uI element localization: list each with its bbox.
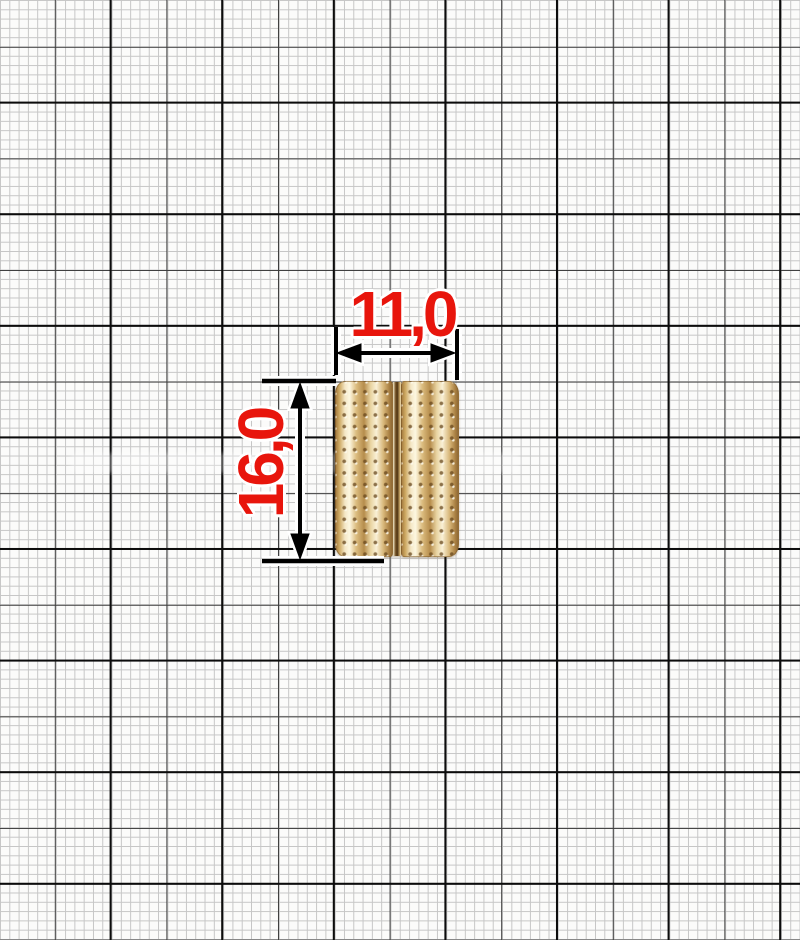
clamp-left-rib: [335, 381, 393, 557]
clamp-center-groove: [393, 382, 401, 556]
clamp-right-rib: [401, 381, 459, 557]
product-photo-gold-clamp: [335, 381, 459, 557]
diagram-stage: 11,0 16,0: [0, 0, 800, 940]
height-dimension-label: 16,0: [229, 410, 293, 519]
width-dimension-label: 11,0: [349, 282, 454, 346]
